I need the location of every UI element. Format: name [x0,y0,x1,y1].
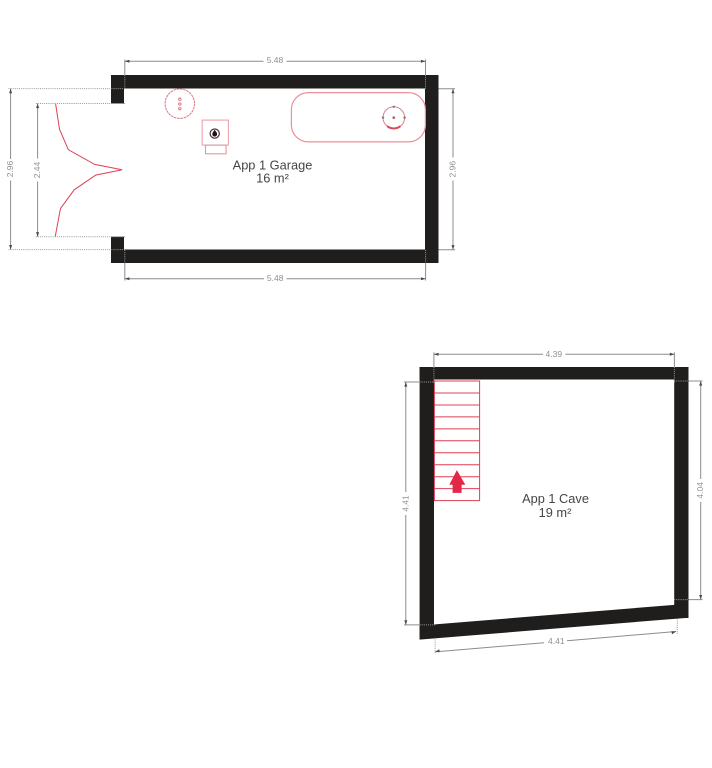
svg-text:4.41: 4.41 [400,495,410,512]
svg-text:2.96: 2.96 [5,160,15,177]
svg-text:App 1 Cave: App 1 Cave [522,491,589,506]
svg-text:4.04: 4.04 [695,482,705,499]
svg-text:5.48: 5.48 [267,55,284,65]
svg-text:2.96: 2.96 [448,161,458,178]
svg-text:2.44: 2.44 [32,161,42,178]
svg-text:19 m²: 19 m² [539,505,572,520]
svg-text:5.48: 5.48 [267,273,284,283]
svg-text:16 m²: 16 m² [256,171,289,186]
svg-text:4.39: 4.39 [546,349,563,359]
svg-text:4.41: 4.41 [548,636,565,646]
